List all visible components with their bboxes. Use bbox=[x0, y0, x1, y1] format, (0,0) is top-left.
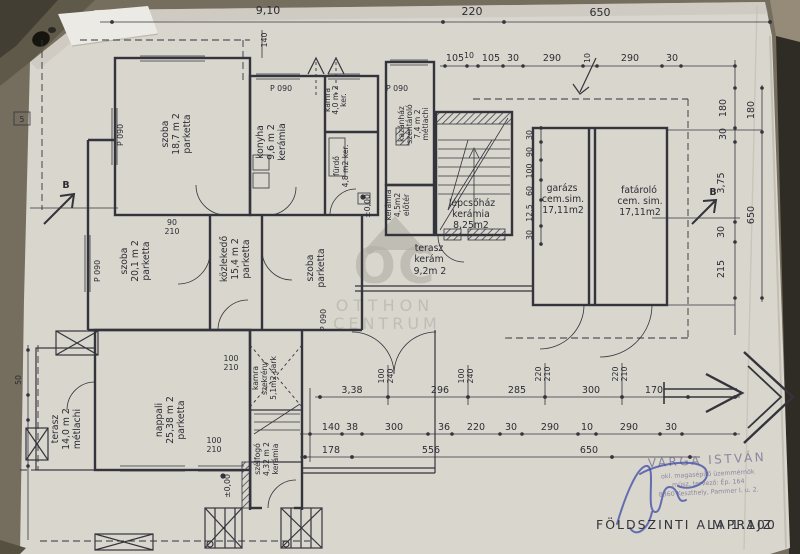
dim-garage: 30 bbox=[525, 230, 534, 240]
dim-right: 180 bbox=[718, 99, 729, 117]
dim-right: 215 bbox=[716, 260, 727, 278]
room-label-fatarolo: fatároló cem. sim. 17,11m2 bbox=[617, 185, 662, 218]
dim-top2: 10 bbox=[583, 53, 592, 63]
room-area: 9,6 m 2 bbox=[266, 124, 277, 160]
room-name: terasz bbox=[50, 415, 61, 444]
dim-right: 30 bbox=[716, 226, 727, 238]
room-name: konyha bbox=[255, 125, 266, 159]
room-area: 25,38 m 2 bbox=[165, 396, 176, 444]
dim-opening: 100 bbox=[457, 369, 466, 384]
room-area: 15,4 m 2 bbox=[230, 238, 241, 280]
dim-garage: 30 bbox=[525, 130, 534, 140]
level-mark: ±0,00 bbox=[363, 194, 372, 218]
section-label-b: B bbox=[62, 180, 69, 191]
room-area: 18,7 m 2 bbox=[171, 113, 182, 155]
dim-bottom2: 10 bbox=[581, 422, 593, 433]
room-floor: parketta bbox=[182, 114, 193, 153]
dim-bottom2: 290 bbox=[620, 422, 638, 433]
window-label-p090: P 090 bbox=[93, 260, 102, 282]
room-floor: kerámia bbox=[271, 444, 280, 475]
room-name: nappali bbox=[154, 403, 165, 437]
room-area: 4,8 m2 ker. bbox=[341, 145, 350, 188]
dim-bottom1: 285 bbox=[508, 385, 526, 396]
room-floor: ker. bbox=[339, 93, 348, 107]
scanned-floorplan-photo: OC OTTHON CENTRUM bbox=[0, 0, 800, 554]
room-area: 4,5m2 bbox=[393, 193, 402, 217]
dim-opening: 220 bbox=[534, 367, 543, 382]
door-size: 210 bbox=[207, 445, 222, 454]
dim-opening: 210 bbox=[543, 367, 552, 382]
room-name: garázs bbox=[547, 183, 578, 194]
room-name: terasz bbox=[415, 243, 444, 254]
floorplan-canvas: OC OTTHON CENTRUM bbox=[0, 0, 800, 554]
dim-bottom1: 170 bbox=[645, 385, 663, 396]
dim-garage: 12,5 bbox=[525, 204, 534, 221]
dim-garage: 90 bbox=[525, 147, 534, 157]
room-area: 9,2m 2 bbox=[414, 266, 447, 277]
room-name: fürdő bbox=[332, 156, 341, 176]
level-mark: ±0,00 bbox=[223, 474, 232, 498]
dim-opening: 100 bbox=[377, 369, 386, 384]
dim-top2: 290 bbox=[543, 53, 561, 64]
window-label-p090: P 090 bbox=[386, 84, 408, 93]
room-name: szoba bbox=[305, 254, 316, 281]
room-name2: szekrény bbox=[260, 361, 269, 395]
room-floor: parketta bbox=[141, 241, 152, 280]
room-name: kamra bbox=[251, 366, 260, 390]
dim-bottom3: 178 bbox=[322, 445, 340, 456]
dim-bottom1: 300 bbox=[582, 385, 600, 396]
dim-bottom3: 556 bbox=[422, 445, 440, 456]
room-area: 4,32 m 2 bbox=[262, 442, 271, 476]
dim-bottom2: 30 bbox=[665, 422, 677, 433]
door-size: 100 bbox=[207, 436, 222, 445]
room-floor: kerámia bbox=[277, 123, 288, 161]
drawing-scale: M 1:100 bbox=[712, 517, 777, 532]
dim-garage: 100 bbox=[525, 164, 534, 179]
dim-top2: 105 bbox=[446, 53, 464, 64]
room-label-kazanhaz: kazánház széntároló 7,4 m 2 métlachi bbox=[397, 104, 430, 144]
dim-bottom2: 36 bbox=[438, 422, 450, 433]
room-floor: parketta bbox=[316, 248, 327, 287]
room-label-kozlekedo: közlekedő 15,4 m 2 parketta bbox=[219, 236, 252, 283]
room-label-eloter: kerámia 4,5m2 előtér bbox=[384, 190, 411, 221]
window-label-p090: P 090 bbox=[319, 309, 328, 331]
dim-opening: 240 bbox=[386, 369, 395, 384]
room-floor: métlachi bbox=[72, 409, 83, 449]
dim-right: 3,75 bbox=[716, 172, 727, 193]
dim-left: 50 bbox=[14, 375, 23, 385]
room-label-lepcsohaz: lépcsőház kerámia 8,25m2 bbox=[449, 198, 495, 231]
title-block: FÖLDSZINTI ALAPRAJZ M 1:100 bbox=[596, 516, 777, 532]
door-size: 100 bbox=[224, 354, 239, 363]
room-name: szoba bbox=[119, 247, 130, 274]
dim-top2: 30 bbox=[507, 53, 519, 64]
room-label-nappali: nappali 25,38 m 2 parketta bbox=[154, 396, 187, 444]
door-size: 90 bbox=[167, 218, 177, 227]
dim-bottom1: 296 bbox=[431, 385, 449, 396]
dim-opening: 220 bbox=[611, 367, 620, 382]
dim-right-outer: 650 bbox=[746, 206, 757, 224]
dim-bottom3: 650 bbox=[580, 445, 598, 456]
room-area: 17,11m2 bbox=[542, 205, 584, 216]
dim-opening: 210 bbox=[620, 367, 629, 382]
room-floor: cem. sim. bbox=[617, 196, 662, 207]
room-floor: parketta bbox=[241, 239, 252, 278]
dim-top2: 10 bbox=[464, 51, 474, 60]
room-area: 14,0 m 2 bbox=[61, 408, 72, 450]
room-name: előtér bbox=[402, 193, 411, 216]
dim-bottom2: 290 bbox=[541, 422, 559, 433]
dim-910: 9,10 bbox=[256, 4, 281, 17]
room-name: közlekedő bbox=[219, 236, 230, 283]
room-floor: kerámia bbox=[452, 209, 490, 220]
window-label-p090: P 090 bbox=[270, 84, 292, 93]
dim-bottom2: 140 bbox=[322, 422, 340, 433]
dim-220: 220 bbox=[462, 5, 483, 18]
room-label-szelfogo: szélfogó 4,32 m 2 kerámia bbox=[253, 442, 280, 476]
room-name: szoba bbox=[160, 120, 171, 147]
dim-left: 5 bbox=[20, 115, 25, 124]
dim-right: 30 bbox=[718, 128, 729, 140]
dim-top2: 30 bbox=[666, 53, 678, 64]
dim-bottom2: 300 bbox=[385, 422, 403, 433]
dim-650-top: 650 bbox=[590, 6, 611, 19]
room-label-konyha: konyha 9,6 m 2 kerámia bbox=[255, 123, 288, 161]
door-size: 210 bbox=[165, 227, 180, 236]
dim-opening: 240 bbox=[466, 369, 475, 384]
window-label-p090: P 090 bbox=[116, 124, 125, 146]
room-floor: parketta bbox=[176, 400, 187, 439]
room-area: 20,1 m 2 bbox=[130, 240, 141, 282]
room-area: 8,25m2 bbox=[453, 220, 489, 231]
door-size: 210 bbox=[224, 363, 239, 372]
dim-top2: 290 bbox=[621, 53, 639, 64]
room-name: fatároló bbox=[621, 185, 657, 196]
room-area: 5,1m2 park bbox=[269, 356, 278, 400]
room-area: 17,11m2 bbox=[619, 207, 661, 218]
room-floor: cem.sim. bbox=[542, 194, 584, 205]
dim-top2: 105 bbox=[482, 53, 500, 64]
dim-bottom2: 38 bbox=[346, 422, 358, 433]
dim-bottom2: 30 bbox=[505, 422, 517, 433]
dim-bottom1: 3,38 bbox=[341, 385, 362, 396]
room-floor: kerám bbox=[414, 254, 443, 265]
room-label-terasz-kozep: terasz kerám 9,2m 2 bbox=[414, 243, 447, 277]
room-name: lépcsőház bbox=[449, 198, 495, 209]
dim-garage: 60 bbox=[525, 186, 534, 196]
watermark-line1: OTTHON bbox=[336, 296, 434, 315]
dim-left: 140 bbox=[260, 33, 269, 48]
room-floor: kerámia bbox=[384, 190, 393, 221]
dim-bottom2: 220 bbox=[467, 422, 485, 433]
room-floor: métlachi bbox=[421, 108, 430, 141]
dim-right-outer: 180 bbox=[746, 101, 757, 119]
room-name: szélfogó bbox=[253, 443, 262, 475]
